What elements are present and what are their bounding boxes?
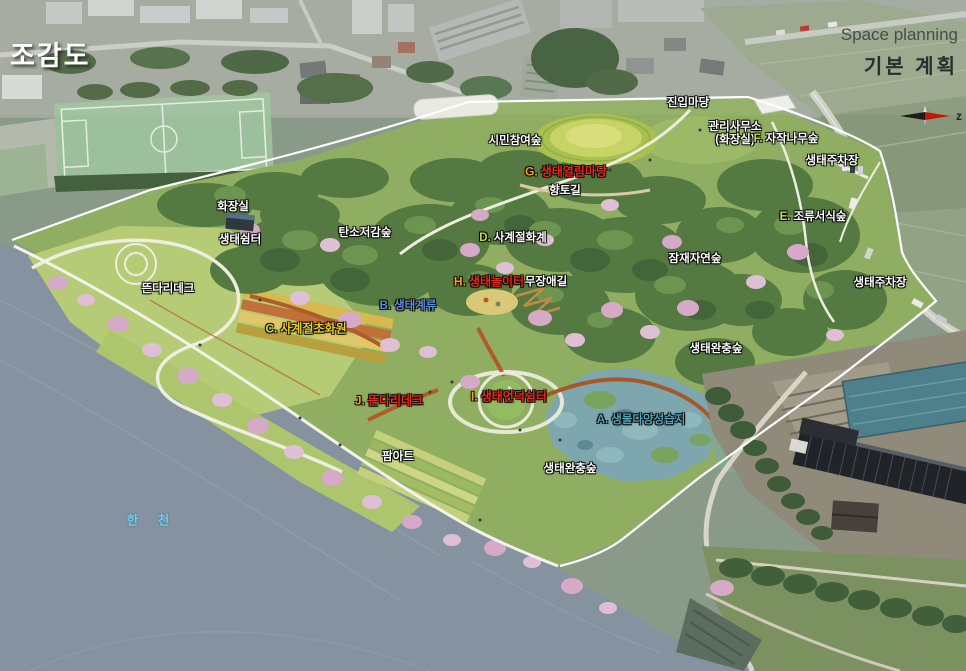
map-label-prefix: D. [479,232,491,244]
playground [466,289,518,315]
map-label-prefix: I. [471,390,478,404]
map-label-text: 생태열림마당 [541,165,607,179]
map-label-text: 팜아트 [382,451,414,463]
map-label-text: 진입마당 [667,97,709,109]
bird-eye-view-plan: 조감도 Space planning 기본 계획 z 진입마당시민참여숲관리사무… [0,0,966,671]
map-label-carbon-reduction-forest: 탄소저감숲 [339,224,392,240]
map-label-eco-buffer-forest-east: 생태완충숲 [690,340,743,356]
page-title: 조감도 [10,34,91,73]
haze-overlay [0,0,966,115]
map-label-four-season-flower-steps: D.사계절화계 [479,229,546,245]
map-label-text: 생태완충숲 [690,343,743,355]
map-label-eco-shelter: 생태쉼터 [219,231,261,247]
map-label-text: 자작나무숲 [766,133,819,145]
map-label-text: 탄소저감숲 [339,227,392,239]
aerial-map [0,0,966,671]
map-label-text: (화장실) [715,134,754,146]
map-label-eco-open-yard: G.생태열림마당 [525,163,607,180]
map-label-text: 생태주차장 [806,155,859,167]
map-label-prefix: H. [454,275,466,289]
map-label-potential-natural-forest: 잠재자연숲 [669,250,722,266]
map-label-eco-stream: B.생태계류 [380,297,437,313]
map-label-barrier-free-trail: 무장애길 [525,273,567,289]
map-label-text: 잠재자연숲 [669,253,722,265]
map-label-text: 생태계류 [394,300,436,312]
map-label-citizen-forest: 시민참여숲 [489,132,542,148]
map-label-four-season-garden: C.사계절초화원 [265,320,346,337]
map-label-text: 시민참여숲 [489,135,542,147]
map-label-text: 생태놀이터 [469,275,524,289]
map-label-office-line2: (화장실) [715,131,754,147]
compass-icon: z [898,102,964,130]
map-label-eco-hill-shelter: I.생태언덕쉼터 [471,388,547,405]
map-label-hyangto-trail: 향토길 [549,182,581,198]
map-label-prefix: E. [780,211,791,223]
map-label-floating-deck-west: 뜬다리데크 [142,280,195,296]
map-label-text: 생태언덕쉼터 [481,390,547,404]
map-label-restroom: 화장실 [217,198,249,214]
map-label-eco-playground: H.생태놀이터 [454,273,524,290]
map-label-prefix: B. [380,300,392,312]
map-label-prefix: J. [355,394,365,408]
map-label-text: 생태주차장 [854,277,907,289]
map-label-eco-buffer-forest-south: 생태완충숲 [544,460,597,476]
compass-direction-label: z [956,109,962,123]
map-label-text: 향토길 [549,185,581,197]
map-label-eco-parking-north: 생태주차장 [806,152,859,168]
map-label-text: 생태쉼터 [219,234,261,246]
map-label-floating-deck-south: J.뜬다리데크 [355,392,423,409]
map-label-river-name: 한 천 [127,510,177,529]
map-label-bird-habitat-forest: E.조류서식숲 [780,208,847,224]
header-base-plan: 기본 계획 [864,50,958,79]
compass-rose [898,102,960,130]
map-label-text: 화장실 [217,201,249,213]
eco-open-yard-mound [534,114,658,166]
map-label-text: 생물다양성습지 [611,414,685,426]
map-label-text: 뜬다리데크 [368,394,423,408]
header-space-planning: Space planning [841,25,958,45]
map-label-text: 사계절화계 [494,232,547,244]
map-label-prefix: G. [525,165,538,179]
map-label-prefix: F. [754,133,763,145]
map-label-text: 무장애길 [525,276,567,288]
map-label-birch-forest: F.자작나무숲 [754,130,819,146]
map-label-entry-yard: 진입마당 [667,94,709,110]
map-label-text: 한 천 [127,514,177,528]
map-label-farm-art: 팜아트 [382,448,414,464]
map-label-biodiversity-wetland: A.생물다양성습지 [597,411,686,427]
map-label-eco-parking-east: 생태주차장 [854,274,907,290]
map-label-prefix: A. [597,414,609,426]
map-label-text: 뜬다리데크 [142,283,195,295]
map-label-text: 조류서식숲 [793,211,846,223]
map-label-prefix: C. [265,322,277,336]
map-label-text: 생태완충숲 [544,463,597,475]
map-label-text: 사계절초화원 [280,322,346,336]
